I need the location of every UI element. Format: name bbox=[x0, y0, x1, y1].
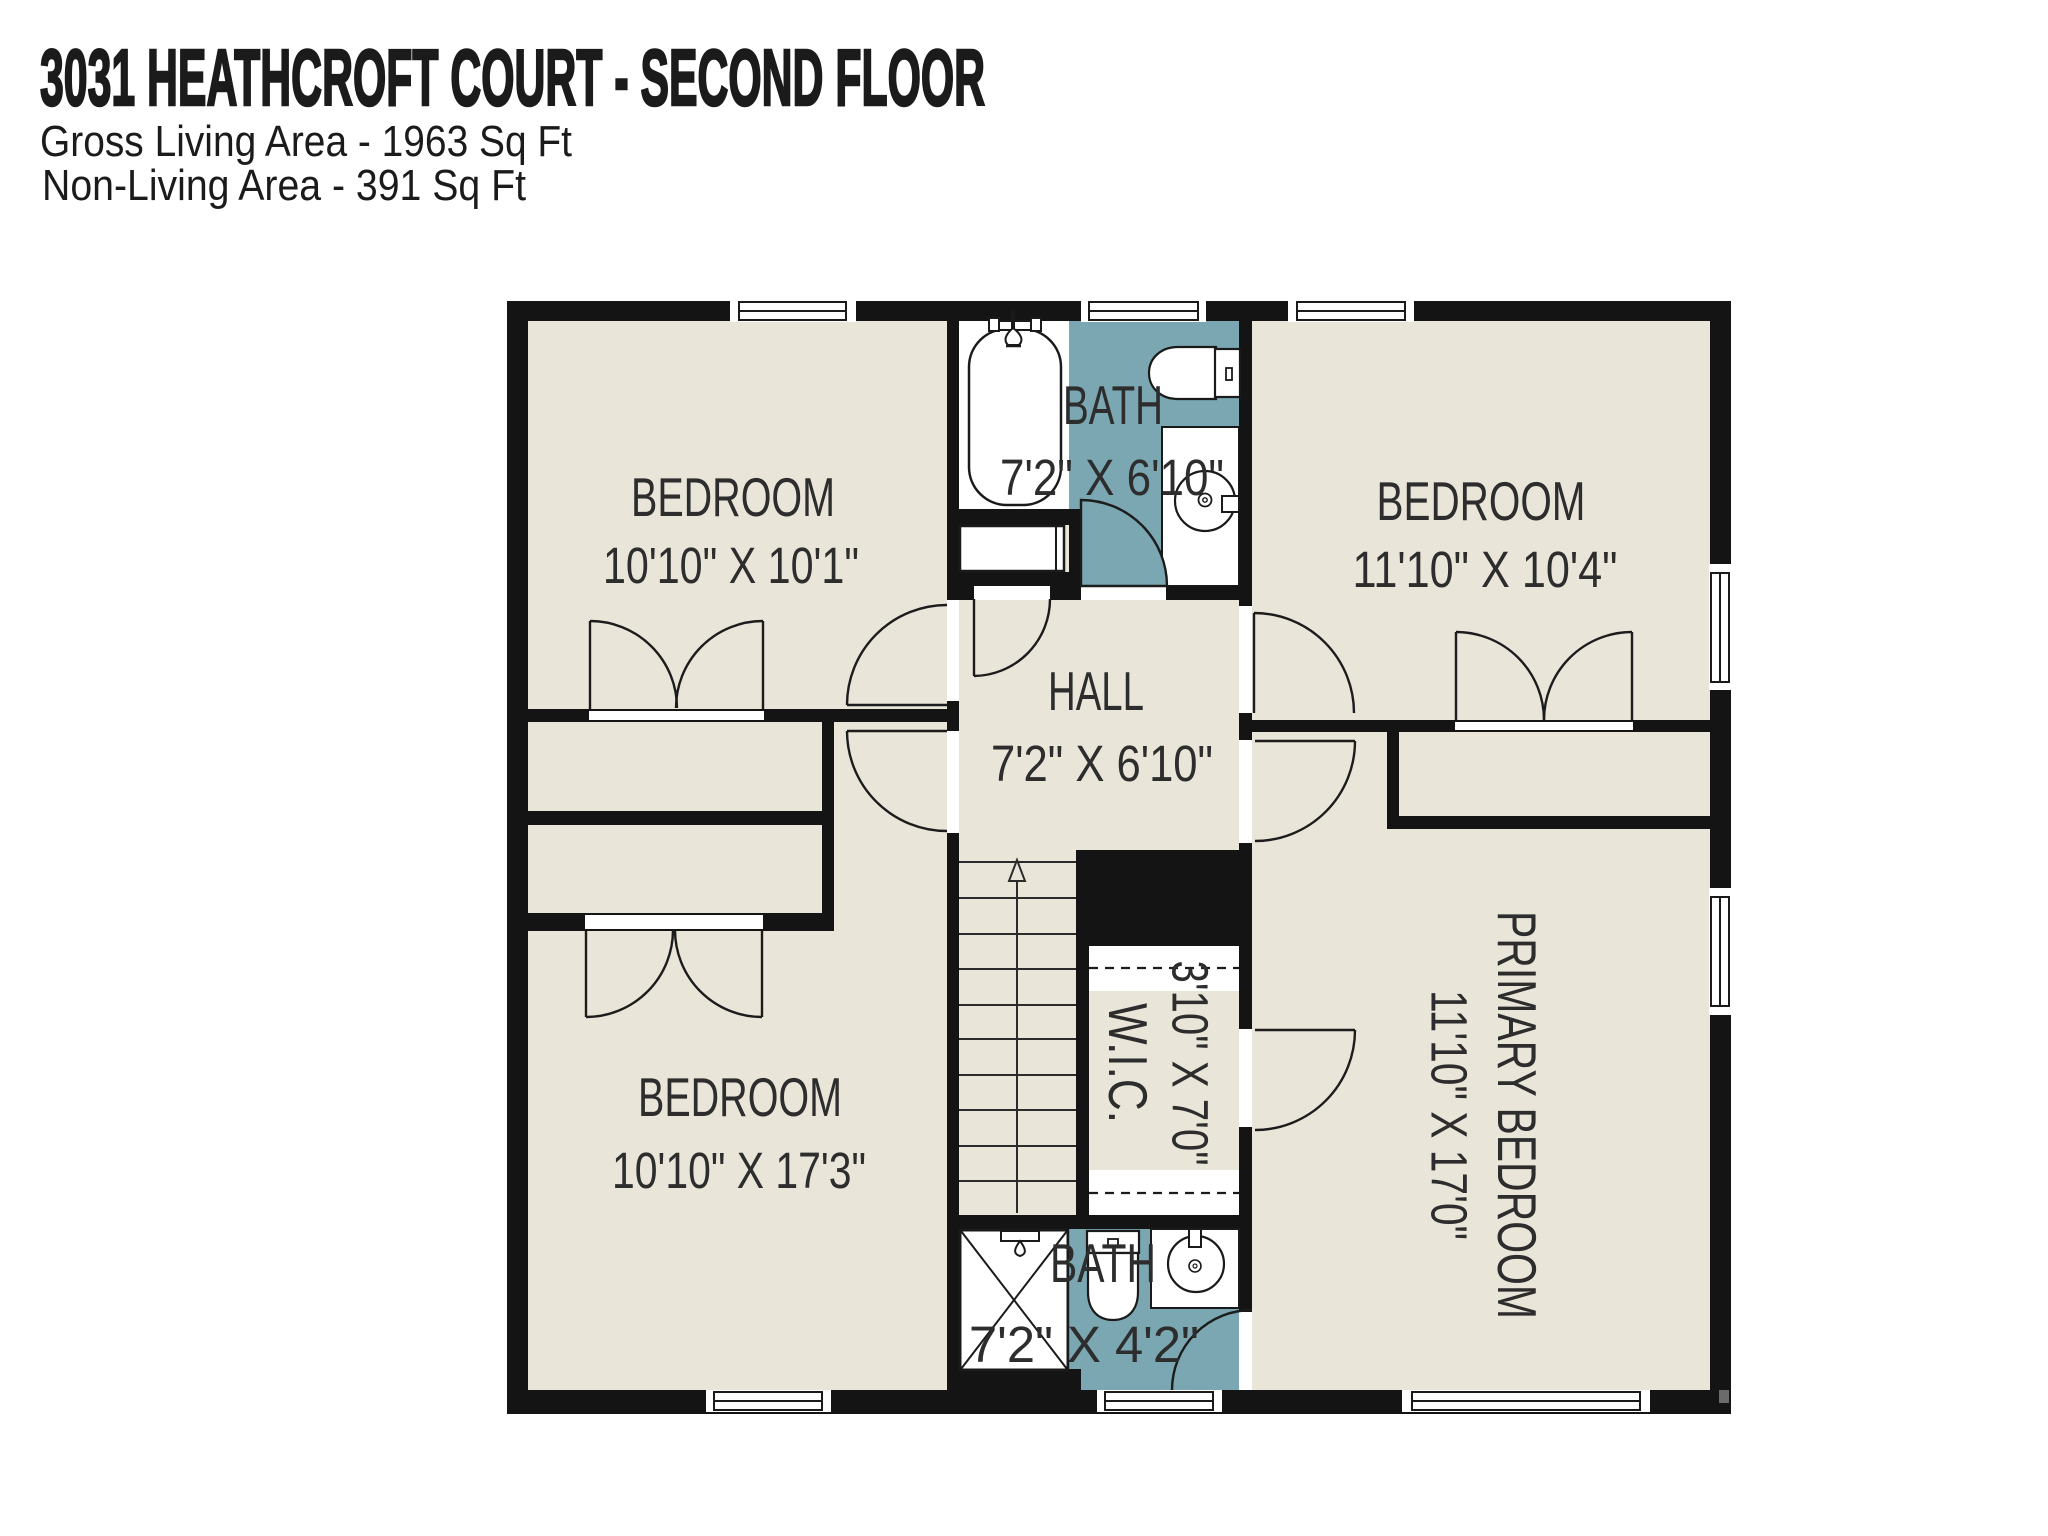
svg-text:7'2" X 4'2": 7'2" X 4'2" bbox=[969, 1316, 1199, 1373]
svg-text:BEDROOM: BEDROOM bbox=[638, 1066, 842, 1128]
svg-text:11'10" X 17'0": 11'10" X 17'0" bbox=[1421, 990, 1478, 1240]
svg-text:10'10" X 10'1": 10'10" X 10'1" bbox=[603, 537, 859, 594]
svg-text:3'10" X 7'0": 3'10" X 7'0" bbox=[1162, 961, 1219, 1166]
svg-text:W.I.C.: W.I.C. bbox=[1097, 1003, 1159, 1123]
svg-text:11'10" X 10'4": 11'10" X 10'4" bbox=[1353, 541, 1618, 598]
svg-text:PRIMARY BEDROOM: PRIMARY BEDROOM bbox=[1486, 911, 1548, 1319]
svg-text:BEDROOM: BEDROOM bbox=[631, 466, 835, 528]
svg-text:3031 HEATHCROFT COURT - SECOND: 3031 HEATHCROFT COURT - SECOND FLOOR bbox=[40, 33, 985, 122]
svg-text:BEDROOM: BEDROOM bbox=[1377, 470, 1586, 532]
svg-text:HALL: HALL bbox=[1048, 660, 1144, 722]
svg-text:Non-Living Area - 391 Sq Ft: Non-Living Area - 391 Sq Ft bbox=[42, 161, 526, 210]
svg-text:10'10" X 17'3": 10'10" X 17'3" bbox=[612, 1142, 866, 1199]
svg-text:BATH: BATH bbox=[1063, 374, 1163, 436]
svg-text:BATH: BATH bbox=[1050, 1232, 1156, 1294]
svg-text:7'2" X 6'10": 7'2" X 6'10" bbox=[991, 735, 1213, 792]
svg-text:Gross Living Area - 1963 Sq Ft: Gross Living Area - 1963 Sq Ft bbox=[40, 117, 572, 166]
svg-text:7'2" X 6'10": 7'2" X 6'10" bbox=[1000, 449, 1224, 506]
